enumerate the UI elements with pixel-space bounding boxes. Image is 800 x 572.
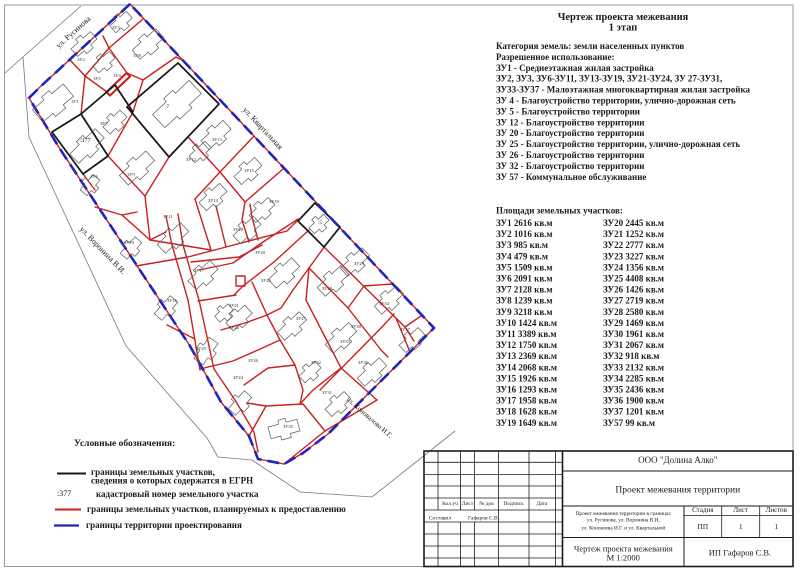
svg-text:ЗУ29: ЗУ29 bbox=[354, 261, 365, 266]
svg-text:Категория земель: земли населе: Категория земель: земли населенных пункт… bbox=[496, 41, 684, 51]
svg-text:ЗУ24 1356 кв.м: ЗУ24 1356 кв.м bbox=[603, 262, 664, 272]
svg-text:Условные обозначения:: Условные обозначения: bbox=[74, 438, 175, 449]
svg-text:ЗУ 57 - Коммунальное обслужива: ЗУ 57 - Коммунальное обслуживание bbox=[496, 172, 646, 182]
svg-text:ИП Гафаров С.В.: ИП Гафаров С.В. bbox=[709, 548, 771, 558]
svg-text:ЗУ 26 - Благоустройство террит: ЗУ 26 - Благоустройство территории bbox=[496, 150, 644, 160]
svg-text:ЗУ16 1293 кв.м: ЗУ16 1293 кв.м bbox=[496, 385, 557, 395]
svg-text:ЗУ2, ЗУ3, ЗУ6-ЗУ11, ЗУ13-ЗУ19,: ЗУ2, ЗУ3, ЗУ6-ЗУ11, ЗУ13-ЗУ19, ЗУ21-ЗУ24… bbox=[496, 74, 722, 84]
svg-text:ЗУ7: ЗУ7 bbox=[100, 121, 108, 126]
svg-text:ЗУ17 1958 кв.м: ЗУ17 1958 кв.м bbox=[496, 396, 557, 406]
svg-text:ЗУ32 918 кв.м: ЗУ32 918 кв.м bbox=[603, 351, 660, 361]
svg-text:ЗУ11 3389 кв.м: ЗУ11 3389 кв.м bbox=[496, 329, 557, 339]
svg-text:ЗУ22: ЗУ22 bbox=[229, 325, 239, 330]
svg-text:ЗУ1: ЗУ1 bbox=[71, 99, 79, 104]
svg-text:ЗУ 32 - Благоустройство террит: ЗУ 32 - Благоустройство территории bbox=[496, 161, 644, 171]
svg-text:ЗУ26 1426 кв.м: ЗУ26 1426 кв.м bbox=[603, 285, 664, 295]
svg-text:ЗУ20: ЗУ20 bbox=[255, 250, 266, 255]
svg-text:1: 1 bbox=[739, 522, 743, 531]
svg-text:ЗУ21 1252 кв.м: ЗУ21 1252 кв.м bbox=[603, 229, 664, 239]
svg-text:1 этап: 1 этап bbox=[609, 23, 638, 34]
svg-text:Лист: Лист bbox=[733, 506, 748, 514]
svg-text:ЗУ19: ЗУ19 bbox=[269, 199, 280, 204]
svg-text:ЗУ16: ЗУ16 bbox=[167, 298, 178, 303]
svg-text:ООО "Долина Алко": ООО "Долина Алко" bbox=[638, 455, 718, 465]
svg-text:ПП: ПП bbox=[697, 522, 708, 531]
svg-text:ЗУ 20 - Благоустройство террит: ЗУ 20 - Благоустройство территории bbox=[496, 128, 644, 138]
svg-text:ЗУ36 1900 кв.м: ЗУ36 1900 кв.м bbox=[603, 396, 664, 406]
svg-text:ЗУ33 2132 кв.м: ЗУ33 2132 кв.м bbox=[603, 362, 664, 372]
svg-text:границы земельных участков, пл: границы земельных участков, планируемых … bbox=[87, 504, 346, 514]
svg-text:ЗУ34: ЗУ34 bbox=[379, 301, 390, 306]
svg-text:ЗУ27: ЗУ27 bbox=[296, 316, 307, 321]
svg-text:Проект межевания территории: Проект межевания территории bbox=[615, 486, 740, 496]
svg-text:Лист: Лист bbox=[462, 501, 474, 507]
svg-text:кадастровый номер земельного у: кадастровый номер земельного участка bbox=[96, 489, 259, 499]
svg-text:ЗУ8 1239 кв.м: ЗУ8 1239 кв.м bbox=[496, 296, 553, 306]
svg-text:ЗУ 5 - Благоустройство террито: ЗУ 5 - Благоустройство территории bbox=[496, 106, 640, 116]
svg-text:ЗУ2: ЗУ2 bbox=[77, 57, 85, 62]
svg-text:ЗУ3 985 кв.м: ЗУ3 985 кв.м bbox=[496, 240, 548, 250]
svg-text::377: :377 bbox=[79, 137, 91, 144]
svg-text:ЗУ1 - Среднеэтажная жилая заст: ЗУ1 - Среднеэтажная жилая застройка bbox=[496, 63, 654, 73]
svg-text:ЗУ32: ЗУ32 bbox=[311, 360, 321, 365]
svg-text::377: :377 bbox=[57, 489, 71, 498]
svg-text:ЗУ33: ЗУ33 bbox=[340, 339, 351, 344]
svg-text:ЗУ9 3218 кв.м: ЗУ9 3218 кв.м bbox=[496, 307, 553, 317]
svg-text:ЗУ15 1926 кв.м: ЗУ15 1926 кв.м bbox=[496, 373, 557, 383]
svg-text:ЗУ23: ЗУ23 bbox=[261, 278, 272, 283]
svg-text:ЗУ 12 - Благоустройство террит: ЗУ 12 - Благоустройство территории bbox=[496, 117, 644, 127]
svg-text:ЗУ20 2445 кв.м: ЗУ20 2445 кв.м bbox=[603, 218, 664, 228]
svg-text:ЗУ35: ЗУ35 bbox=[283, 424, 294, 429]
svg-text:ЗУ4: ЗУ4 bbox=[113, 73, 121, 78]
svg-text:ЗУ15: ЗУ15 bbox=[244, 168, 255, 173]
svg-text:ЗУ25 4408 кв.м: ЗУ25 4408 кв.м bbox=[603, 274, 664, 284]
svg-text:ул. Коновлева И.Г. и ул. Кварт: ул. Коновлева И.Г. и ул. Квартальной bbox=[581, 525, 665, 532]
svg-text:ЗУ5: ЗУ5 bbox=[93, 76, 101, 81]
svg-text:ЗУ1 2616 кв.м: ЗУ1 2616 кв.м bbox=[496, 218, 553, 228]
svg-text:ЗУ9: ЗУ9 bbox=[127, 172, 135, 177]
svg-text:ЗУ28: ЗУ28 bbox=[322, 286, 333, 291]
svg-text:Проект межевания территории в: Проект межевания территории в границах bbox=[576, 511, 672, 517]
svg-text:ЗУ18 1628 кв.м: ЗУ18 1628 кв.м bbox=[496, 407, 557, 417]
svg-text:ЗУ4 479 кв.м: ЗУ4 479 кв.м bbox=[496, 251, 548, 261]
svg-text:ЗУ22 2777 кв.м: ЗУ22 2777 кв.м bbox=[603, 240, 664, 250]
svg-text:Гафаров С.В.: Гафаров С.В. bbox=[468, 515, 500, 522]
svg-text:границы территории проектирова: границы территории проектирования bbox=[86, 520, 242, 530]
svg-text:ЗУ29 1469 кв.м: ЗУ29 1469 кв.м bbox=[603, 318, 664, 328]
svg-text:Составил: Составил bbox=[429, 516, 451, 522]
svg-text:ЗУ11: ЗУ11 bbox=[163, 214, 173, 219]
svg-text:№ док: № док bbox=[479, 501, 494, 507]
svg-text:ЗУ33-ЗУ37 - Малоэтажная многок: ЗУ33-ЗУ37 - Малоэтажная многоквартирная … bbox=[496, 85, 751, 95]
svg-text:ЗУ10 1424 кв.м: ЗУ10 1424 кв.м bbox=[496, 318, 557, 328]
svg-text:ЗУ10: ЗУ10 bbox=[124, 240, 135, 245]
svg-text:ЗУ30: ЗУ30 bbox=[351, 324, 362, 329]
svg-text:Стадия: Стадия bbox=[692, 506, 714, 514]
svg-text:ЗУ5 1509 кв.м: ЗУ5 1509 кв.м bbox=[496, 262, 553, 272]
svg-text:ЗУ2 1016 кв.м: ЗУ2 1016 кв.м bbox=[496, 229, 553, 239]
svg-text:ЗУ19 1649 кв.м: ЗУ19 1649 кв.м bbox=[496, 418, 557, 428]
svg-text:ЗУ14: ЗУ14 bbox=[208, 198, 219, 203]
svg-text:Площади земельных участков:: Площади земельных участков: bbox=[496, 206, 623, 216]
svg-text:ЗУ28 2580 кв.м: ЗУ28 2580 кв.м bbox=[603, 307, 664, 317]
svg-text:ЗУ12 1750 кв.м: ЗУ12 1750 кв.м bbox=[496, 340, 557, 350]
svg-text:ЗУ57 99 кв.м: ЗУ57 99 кв.м bbox=[603, 418, 655, 428]
svg-text:Листов: Листов bbox=[766, 506, 788, 514]
svg-text:ЗУ35 2436 кв.м: ЗУ35 2436 кв.м bbox=[603, 385, 664, 395]
svg-text:ЗУ14 2068 кв.м: ЗУ14 2068 кв.м bbox=[496, 362, 557, 372]
svg-text:М 1:2000: М 1:2000 bbox=[607, 553, 640, 563]
svg-text:Чертеж проекта межевания: Чертеж проекта межевания bbox=[558, 12, 689, 23]
svg-text:ЗУ13: ЗУ13 bbox=[212, 137, 223, 142]
svg-text:ул. Русинова, ул. Воронина В.И: ул. Русинова, ул. Воронина В.И, bbox=[587, 518, 660, 524]
svg-text:ЗУ24: ЗУ24 bbox=[233, 375, 244, 380]
svg-text:ЗУ37 1201 кв.м: ЗУ37 1201 кв.м bbox=[603, 407, 664, 417]
svg-text:ЗУ17: ЗУ17 bbox=[194, 268, 205, 273]
svg-text::7: :7 bbox=[165, 104, 170, 110]
svg-text:ЗУ21: ЗУ21 bbox=[229, 303, 239, 308]
svg-text:ЗУ13 2369 кв.м: ЗУ13 2369 кв.м bbox=[496, 351, 557, 361]
svg-text:ЗУ30 1961 кв.м: ЗУ30 1961 кв.м bbox=[603, 329, 664, 339]
svg-text:ЗУ3: ЗУ3 bbox=[112, 25, 120, 30]
svg-text:ЗУ31 2067 кв.м: ЗУ31 2067 кв.м bbox=[603, 340, 664, 350]
svg-text:Дата: Дата bbox=[537, 501, 549, 507]
svg-text:ЗУ36: ЗУ36 bbox=[358, 360, 369, 365]
svg-text:ЗУ26: ЗУ26 bbox=[248, 358, 259, 363]
svg-text::5: :5 bbox=[318, 220, 323, 226]
svg-text:ЗУ23 3227 кв.м: ЗУ23 3227 кв.м bbox=[603, 251, 664, 261]
svg-text:Разрешенное использование:: Разрешенное использование: bbox=[496, 52, 614, 62]
svg-text:ЗУ18: ЗУ18 bbox=[233, 227, 244, 232]
svg-text:ЗУ12: ЗУ12 bbox=[186, 157, 196, 162]
svg-text:ЗУ31: ЗУ31 bbox=[322, 390, 332, 395]
svg-text:1: 1 bbox=[774, 522, 778, 531]
svg-text:Подпись: Подпись bbox=[503, 501, 524, 507]
svg-text:ЗУ8: ЗУ8 bbox=[133, 53, 141, 58]
svg-text:сведения о которых содержатся: сведения о которых содержатся в ЕГРН bbox=[91, 476, 253, 486]
svg-text:ЗУ 4 - Благоустройство террито: ЗУ 4 - Благоустройство территории, уличн… bbox=[496, 96, 736, 106]
svg-text:ЗУ25: ЗУ25 bbox=[196, 346, 207, 351]
svg-text:ЗУ34 2285 кв.м: ЗУ34 2285 кв.м bbox=[603, 373, 664, 383]
svg-text:ЗУ 25 - Благоустройство террит: ЗУ 25 - Благоустройство территории, улич… bbox=[496, 139, 740, 149]
svg-text:ЗУ6: ЗУ6 bbox=[90, 174, 98, 179]
svg-text:ЗУ27 2719 кв.м: ЗУ27 2719 кв.м bbox=[603, 296, 664, 306]
svg-text:ЗУ6 2091 кв.м: ЗУ6 2091 кв.м bbox=[496, 274, 553, 284]
svg-text:ЗУ37: ЗУ37 bbox=[400, 327, 411, 332]
svg-text:ЗУ7 2128 кв.м: ЗУ7 2128 кв.м bbox=[496, 285, 553, 295]
svg-text:Кол.уч: Кол.уч bbox=[442, 501, 458, 507]
